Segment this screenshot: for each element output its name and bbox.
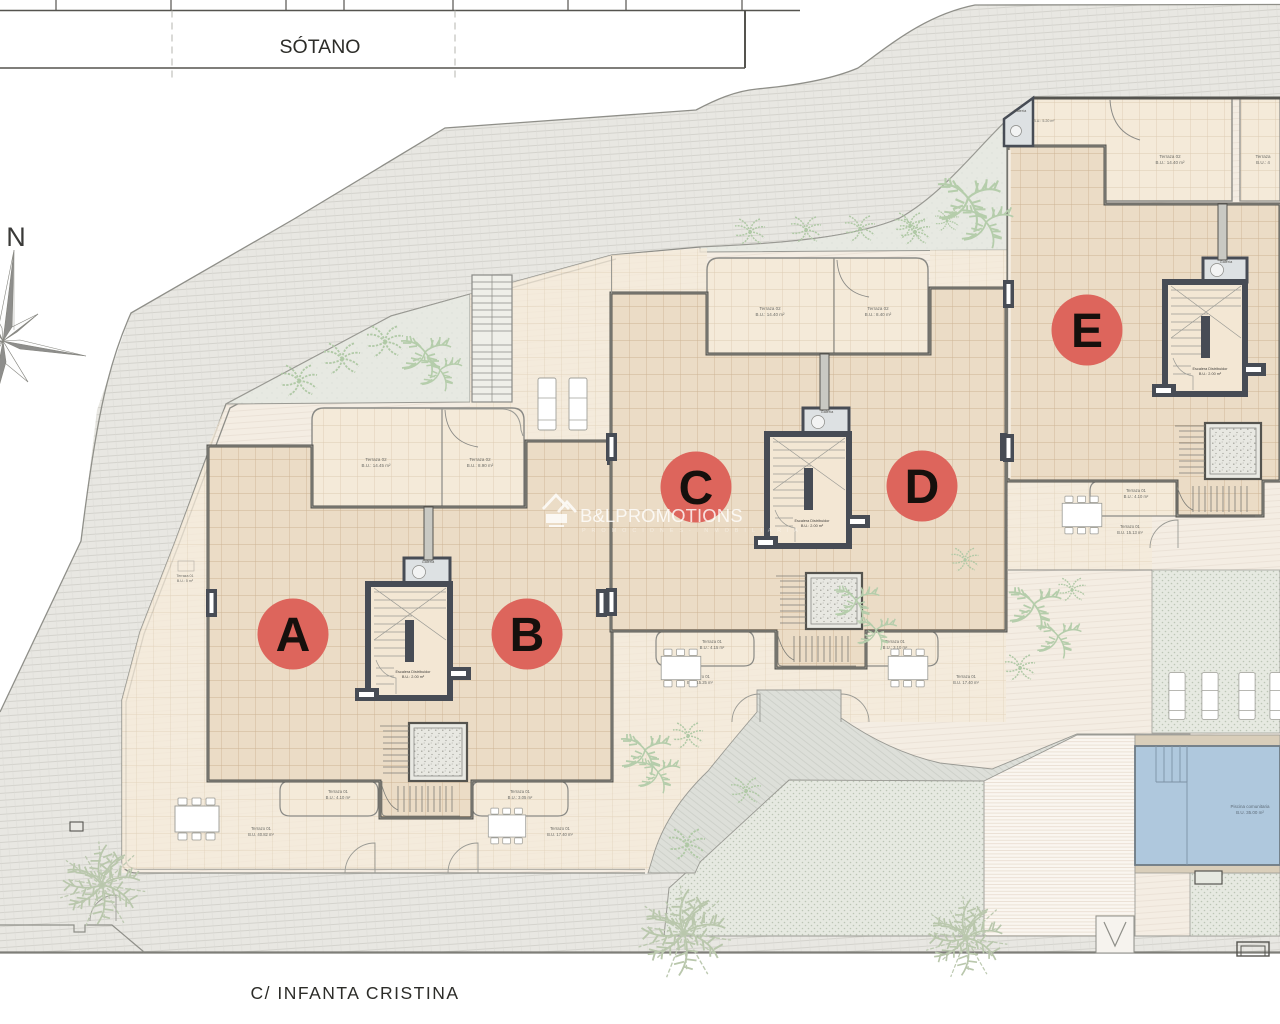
svg-text:Escalera Distribuidor: Escalera Distribuidor [1192, 367, 1228, 371]
svg-text:A: A [276, 609, 311, 662]
svg-text:B.U. 17.40 m²: B.U. 17.40 m² [547, 832, 573, 837]
svg-text:B&LPROMOTIONS: B&LPROMOTIONS [580, 505, 743, 526]
svg-text:B.U. 17.40 m²: B.U. 17.40 m² [953, 680, 979, 685]
svg-text:B.U.: 8.90 m²: B.U.: 8.90 m² [467, 463, 494, 468]
svg-text:B: B [510, 609, 545, 662]
svg-text:Terraza 02: Terraza 02 [867, 306, 889, 311]
svg-text:Terrazo 01: Terrazo 01 [550, 826, 570, 831]
svg-text:B.U. 40.82 m²: B.U. 40.82 m² [248, 832, 274, 837]
svg-text:SÓTANO: SÓTANO [280, 35, 361, 58]
svg-text:Galería: Galería [821, 410, 834, 414]
svg-text:B.U.: 3.05 m²: B.U.: 3.05 m² [508, 795, 533, 800]
svg-text:B.U. 35.00 m²: B.U. 35.00 m² [1236, 810, 1264, 815]
svg-text:Terraza 01: Terraza 01 [1126, 488, 1146, 493]
svg-text:B.U.: 4.15 m²: B.U.: 4.15 m² [700, 645, 725, 650]
svg-text:D: D [905, 461, 940, 514]
svg-text:Terraza 02: Terraza 02 [759, 306, 781, 311]
svg-text:B.U.: 4.10 m²: B.U.: 4.10 m² [1124, 494, 1149, 499]
svg-text:Terraza 02: Terraza 02 [1159, 154, 1181, 159]
svg-text:Piscina comunitaria: Piscina comunitaria [1230, 804, 1270, 809]
svg-text:B.U.: 4: B.U.: 4 [1256, 160, 1270, 165]
svg-text:B.U.: 5 m²: B.U.: 5 m² [177, 579, 194, 583]
svg-text:Terraza 02: Terraza 02 [365, 457, 387, 462]
svg-text:Terraza 01: Terraza 01 [510, 789, 530, 794]
svg-text:B.U.: 14.45 m²: B.U.: 14.45 m² [361, 463, 391, 468]
svg-text:Terraza: Terraza [1255, 154, 1271, 159]
svg-text:B.U.: 14.40 m²: B.U.: 14.40 m² [1155, 160, 1185, 165]
svg-text:B.U.: 8.40 m²: B.U.: 8.40 m² [865, 312, 892, 317]
svg-text:B.U.: 5.20 m²: B.U.: 5.20 m² [1033, 119, 1055, 123]
svg-text:B.U. 15.13 m²: B.U. 15.13 m² [1117, 530, 1143, 535]
svg-text:B.U.: 2.00 m²: B.U.: 2.00 m² [801, 524, 824, 528]
svg-text:B.U.: 2.00 m²: B.U.: 2.00 m² [402, 675, 425, 679]
svg-text:Terraza 02: Terraza 02 [469, 457, 491, 462]
svg-text:B.U.: 4.10 m²: B.U.: 4.10 m² [326, 795, 351, 800]
svg-text:Terraza 01: Terraza 01 [177, 574, 194, 578]
svg-text:Terrazo 01: Terrazo 01 [1120, 524, 1140, 529]
svg-text:B.U.: 14.40 m²: B.U.: 14.40 m² [755, 312, 785, 317]
svg-text:Terraza 01: Terraza 01 [328, 789, 348, 794]
svg-text:Escalera Distribuidor: Escalera Distribuidor [395, 670, 431, 674]
svg-text:Galería: Galería [422, 560, 435, 564]
svg-text:B.U.: 2.00 m²: B.U.: 2.00 m² [1199, 372, 1222, 376]
svg-text:N: N [6, 222, 26, 252]
svg-text:P R O M O C I O N E S · I N M: P R O M O C I O N E S · I N M O B I L I … [582, 528, 800, 534]
svg-text:Terraza 01: Terraza 01 [702, 639, 722, 644]
svg-text:Galería: Galería [1014, 109, 1027, 113]
svg-text:E: E [1071, 305, 1103, 358]
svg-text:Terraza 01: Terraza 01 [956, 674, 976, 679]
svg-text:Escalera Distribuidor: Escalera Distribuidor [794, 519, 830, 523]
svg-text:C/ INFANTA CRISTINA: C/ INFANTA CRISTINA [250, 983, 459, 1003]
svg-text:Galería: Galería [1220, 260, 1233, 264]
svg-text:Terrazo 01: Terrazo 01 [251, 826, 271, 831]
